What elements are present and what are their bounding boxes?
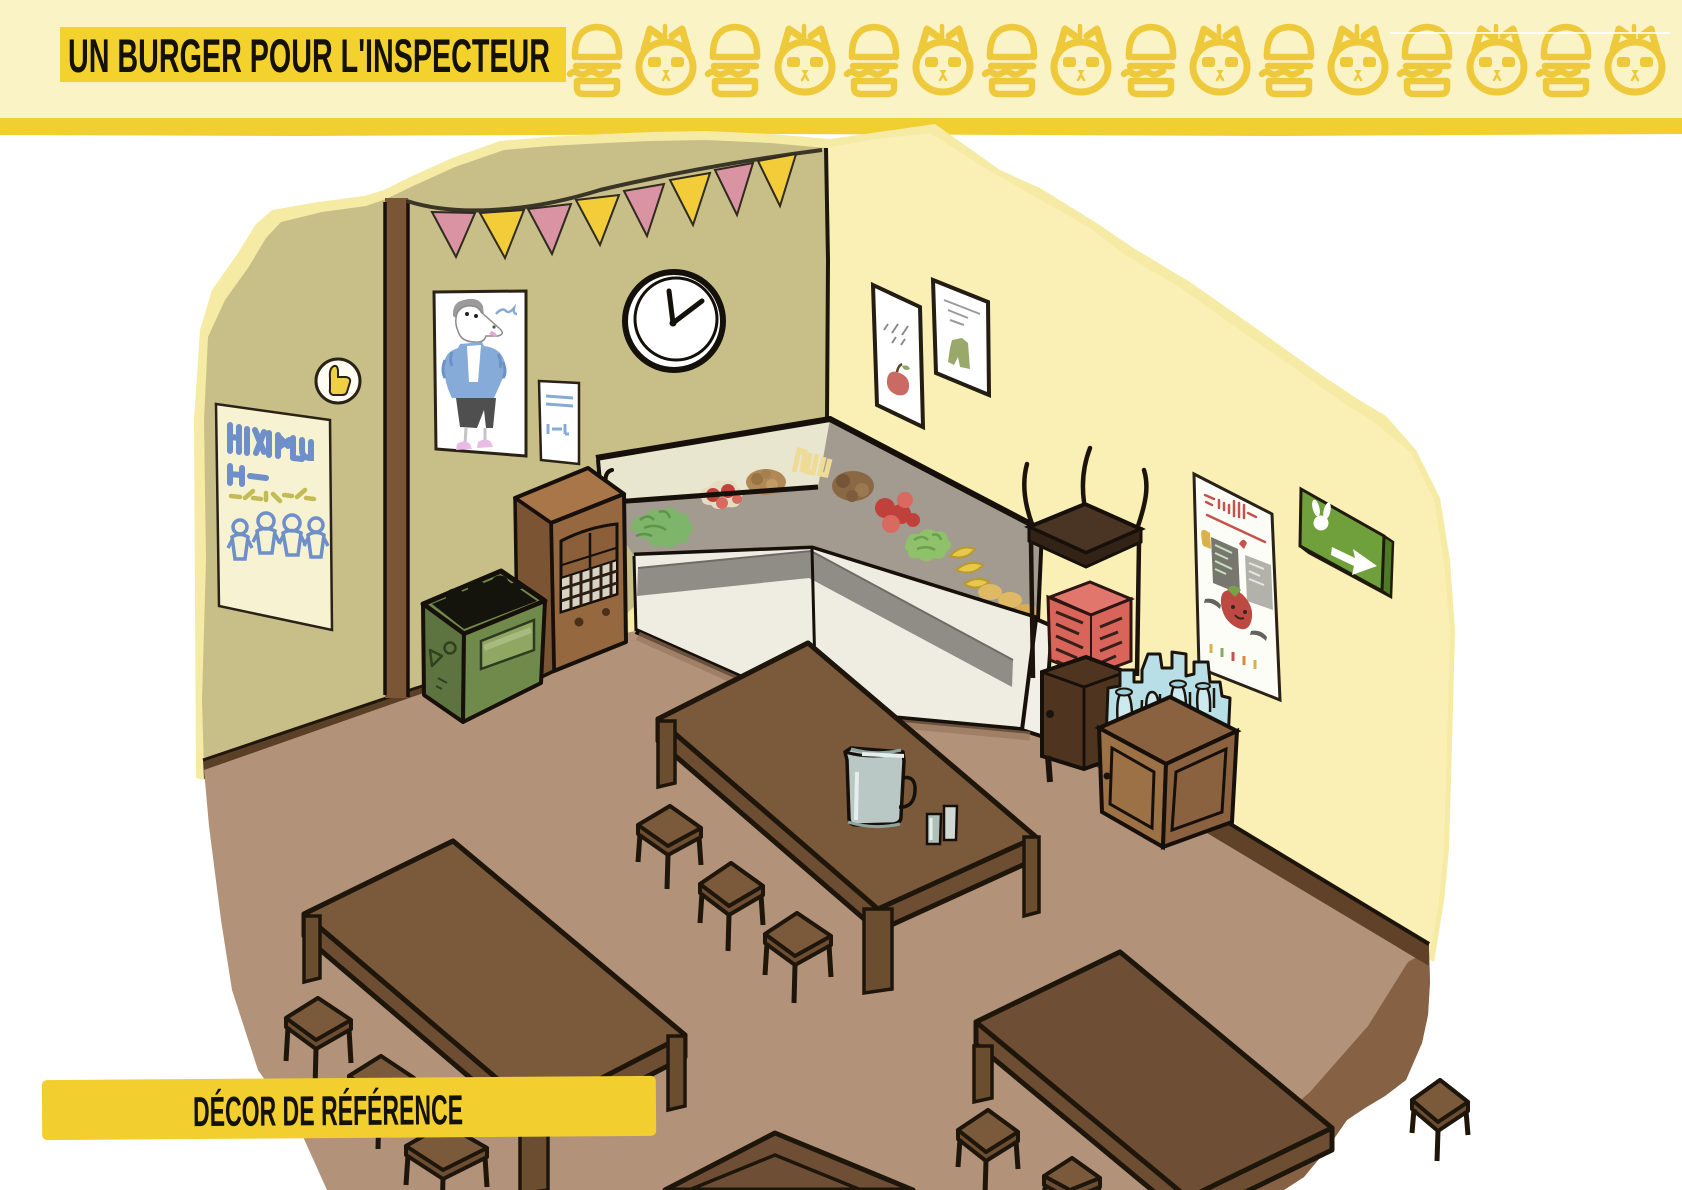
svg-text:DÉCOR DE RÉFÉRENCE: DÉCOR DE RÉFÉRENCE [193,1086,463,1135]
svg-text:UN BURGER POUR L'INSPECTEUR: UN BURGER POUR L'INSPECTEUR [68,29,550,82]
